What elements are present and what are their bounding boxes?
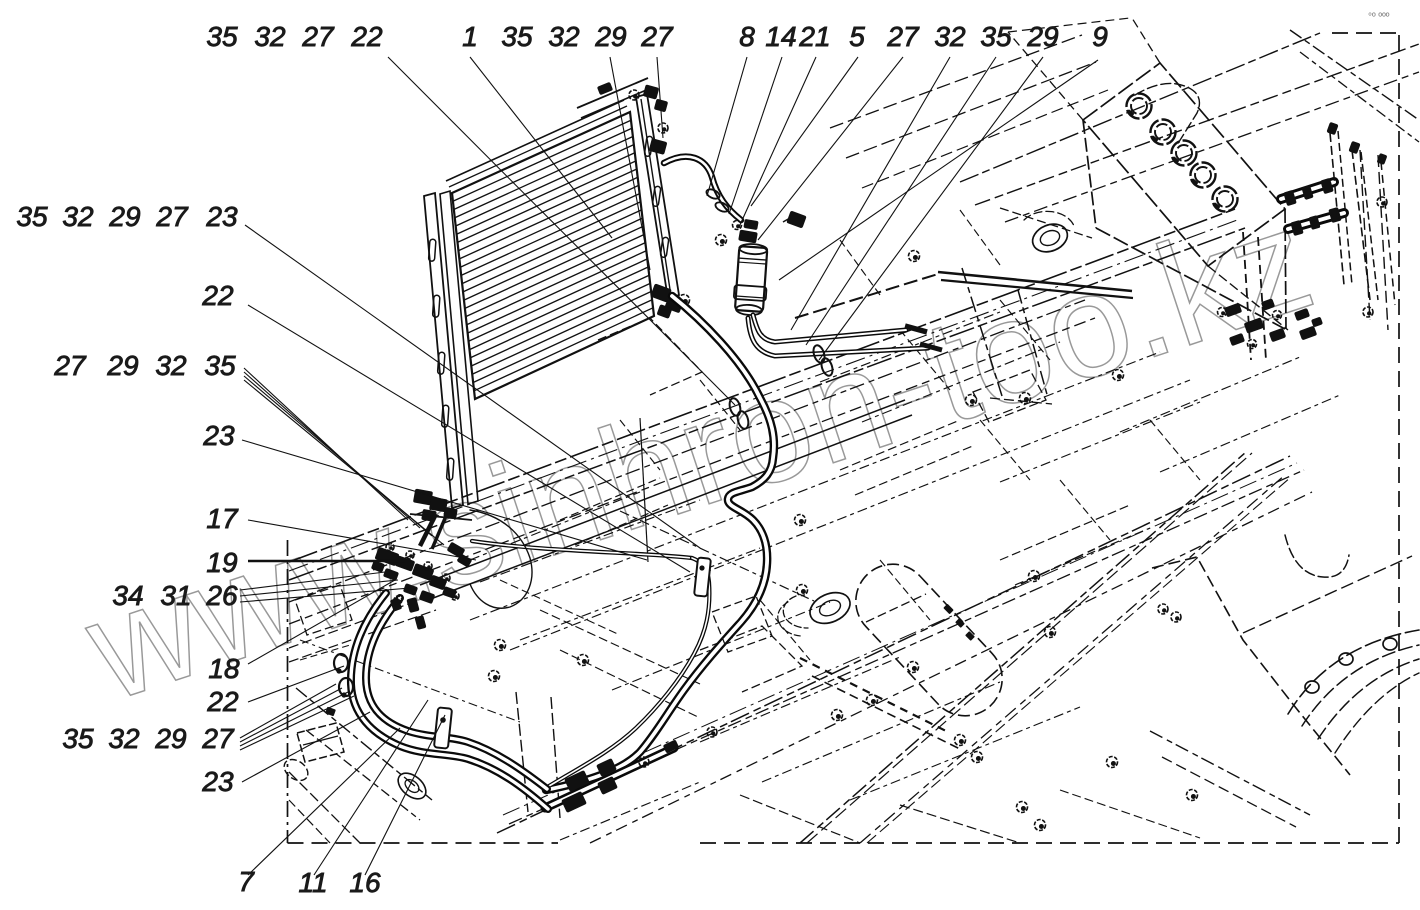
svg-text:23: 23 [205, 201, 238, 232]
svg-text:1: 1 [462, 21, 478, 52]
svg-text:17: 17 [206, 503, 239, 534]
svg-text:35: 35 [62, 723, 94, 754]
svg-text:27: 27 [155, 201, 189, 232]
svg-text:35: 35 [501, 21, 533, 52]
svg-text:19: 19 [206, 547, 237, 578]
svg-text:23: 23 [201, 766, 234, 797]
svg-text:23: 23 [202, 420, 235, 451]
svg-text:°º ººº: °º ººº [1368, 12, 1390, 23]
svg-text:22: 22 [350, 21, 383, 52]
svg-text:29: 29 [594, 21, 626, 52]
svg-text:27: 27 [640, 21, 674, 52]
svg-text:32: 32 [548, 21, 580, 52]
svg-text:29: 29 [154, 723, 186, 754]
svg-text:27: 27 [201, 723, 235, 754]
svg-text:32: 32 [108, 723, 140, 754]
svg-text:7: 7 [238, 866, 255, 897]
svg-text:29: 29 [106, 350, 138, 381]
svg-text:27: 27 [53, 350, 87, 381]
svg-text:16: 16 [349, 867, 381, 898]
svg-text:27: 27 [301, 21, 335, 52]
svg-text:35: 35 [16, 201, 48, 232]
svg-text:18: 18 [208, 653, 240, 684]
svg-text:32: 32 [254, 21, 286, 52]
svg-text:32: 32 [62, 201, 94, 232]
svg-text:5: 5 [849, 21, 865, 52]
svg-text:21: 21 [798, 21, 830, 52]
svg-text:11: 11 [298, 867, 327, 898]
svg-text:35: 35 [980, 21, 1012, 52]
svg-text:32: 32 [155, 350, 187, 381]
svg-text:29: 29 [1026, 21, 1058, 52]
svg-text:32: 32 [934, 21, 966, 52]
svg-text:27: 27 [886, 21, 920, 52]
svg-text:35: 35 [206, 21, 238, 52]
svg-text:29: 29 [108, 201, 140, 232]
svg-text:34: 34 [112, 580, 143, 611]
svg-text:8: 8 [739, 21, 755, 52]
svg-text:35: 35 [204, 350, 236, 381]
svg-text:14: 14 [765, 21, 796, 52]
svg-text:26: 26 [205, 580, 238, 611]
svg-text:9: 9 [1092, 21, 1108, 52]
svg-text:22: 22 [206, 686, 239, 717]
svg-text:22: 22 [201, 280, 234, 311]
svg-text:31: 31 [160, 580, 191, 611]
